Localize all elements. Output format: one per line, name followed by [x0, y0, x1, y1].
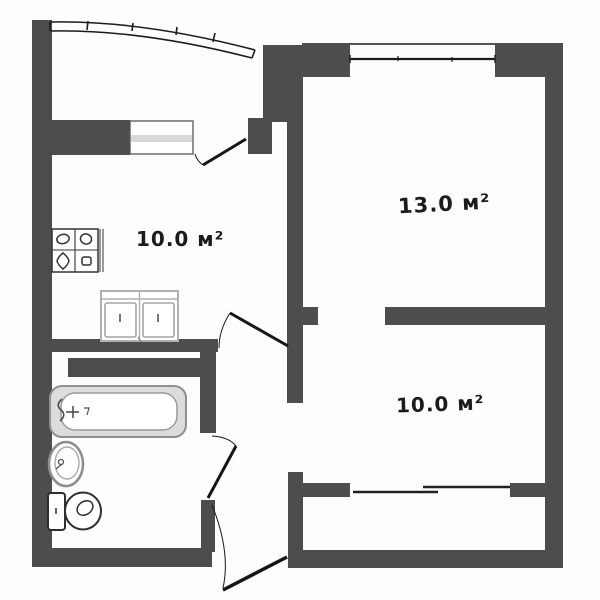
- wall-segment: [545, 45, 563, 568]
- wall-segment: [200, 352, 216, 433]
- wall-segment: [52, 120, 130, 155]
- wardrobe-sliding-door: [353, 487, 510, 492]
- stove-icon: [52, 229, 103, 272]
- wall-segment: [248, 118, 272, 154]
- wall-segment: [287, 77, 303, 403]
- room-wardrobe: [303, 497, 545, 550]
- floor-plan-drawing: [0, 0, 600, 600]
- kitchen-sink-cabinet-icon: [101, 291, 178, 342]
- room-hallway: [216, 352, 288, 550]
- wall-segment: [385, 307, 545, 325]
- wall-segment: [303, 307, 318, 325]
- wall-segment: [68, 358, 200, 377]
- toilet-icon: [48, 493, 101, 531]
- wall-segment: [302, 43, 350, 77]
- wall-segment: [510, 483, 545, 497]
- kitchen-window: [130, 121, 193, 154]
- living-room-area-label: 13.0 м²: [397, 190, 491, 219]
- wall-segment: [32, 548, 212, 567]
- wall-segment: [32, 20, 52, 567]
- bathtub-icon: [50, 386, 186, 437]
- floor-plan: 10.0 м² 13.0 м² 10.0 м²: [0, 0, 600, 600]
- wall-segment: [288, 550, 563, 568]
- wall-segment: [303, 483, 350, 497]
- bedroom-area-label: 10.0 м²: [396, 390, 485, 417]
- wall-segment: [288, 472, 303, 552]
- kitchen-area-label: 10.0 м²: [136, 227, 224, 251]
- washbasin-icon: [49, 442, 83, 486]
- wall-segment: [495, 43, 563, 77]
- living-room-window: [350, 44, 495, 63]
